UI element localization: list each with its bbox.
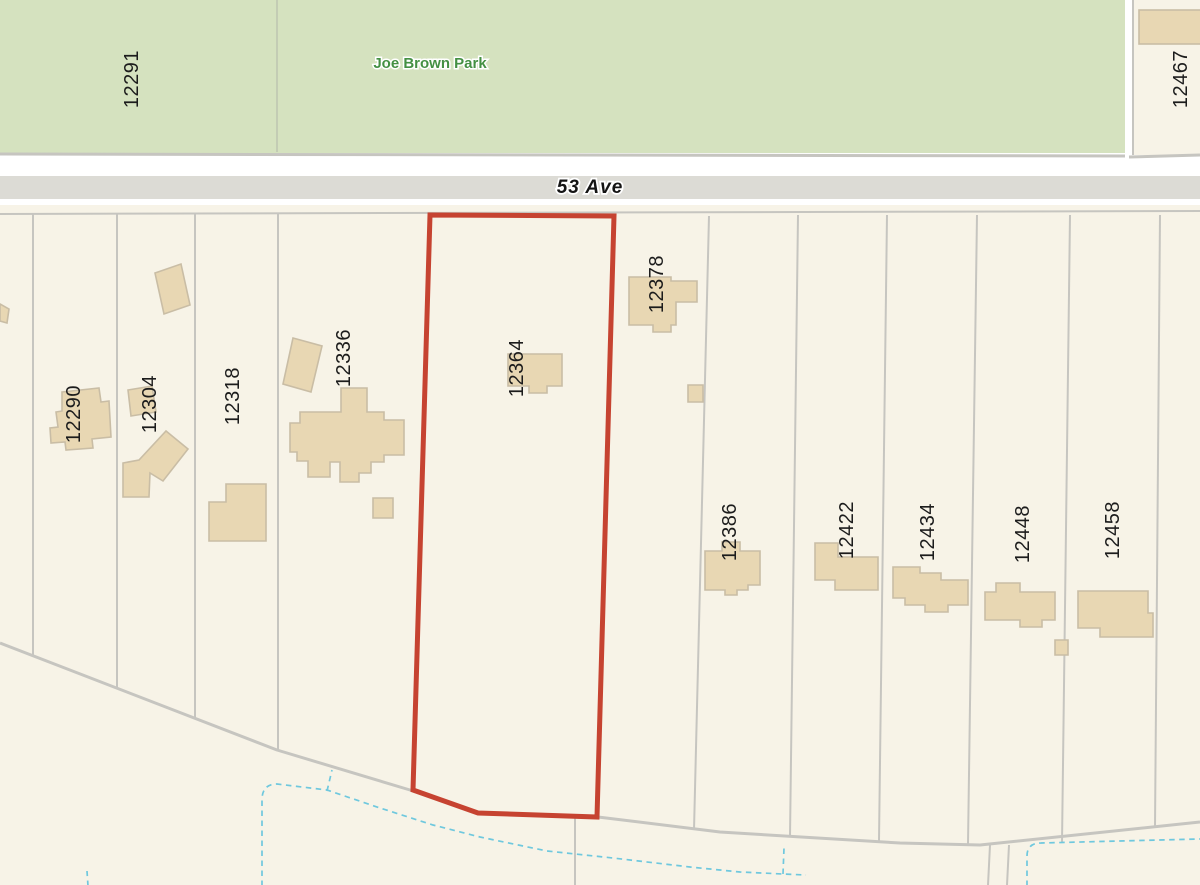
parcel-label-12422: 12422 — [836, 501, 858, 559]
parcel-map-svg: Joe Brown Park 53 Ave 12291 12467 12290 … — [0, 0, 1200, 885]
parcel-label-12467: 12467 — [1170, 50, 1192, 108]
parcel-label-12378: 12378 — [646, 255, 668, 313]
building-12448-shed — [1055, 640, 1068, 655]
parcel-label-12291: 12291 — [121, 50, 143, 108]
parcel-label-12434: 12434 — [917, 503, 939, 561]
building-12336-shed — [373, 498, 393, 518]
building-12378-shed — [688, 385, 703, 402]
parcel-label-12386: 12386 — [719, 503, 741, 561]
map-canvas[interactable]: Joe Brown Park 53 Ave 12291 12467 12290 … — [0, 0, 1200, 885]
park-area — [0, 0, 1125, 156]
building-12467 — [1139, 10, 1200, 44]
parcel-label-12304: 12304 — [139, 375, 161, 433]
park-name-label: Joe Brown Park — [373, 55, 487, 72]
street-name-label: 53 Ave — [557, 177, 624, 198]
parcel-label-12336: 12336 — [333, 329, 355, 387]
parcel-label-12318: 12318 — [222, 367, 244, 425]
parcel-label-12290: 12290 — [63, 385, 85, 443]
water-line-left-spur-b — [783, 848, 784, 874]
parcel-label-12364: 12364 — [506, 339, 528, 397]
parcel-label-12448: 12448 — [1012, 505, 1034, 563]
parcel-label-12458: 12458 — [1102, 501, 1124, 559]
